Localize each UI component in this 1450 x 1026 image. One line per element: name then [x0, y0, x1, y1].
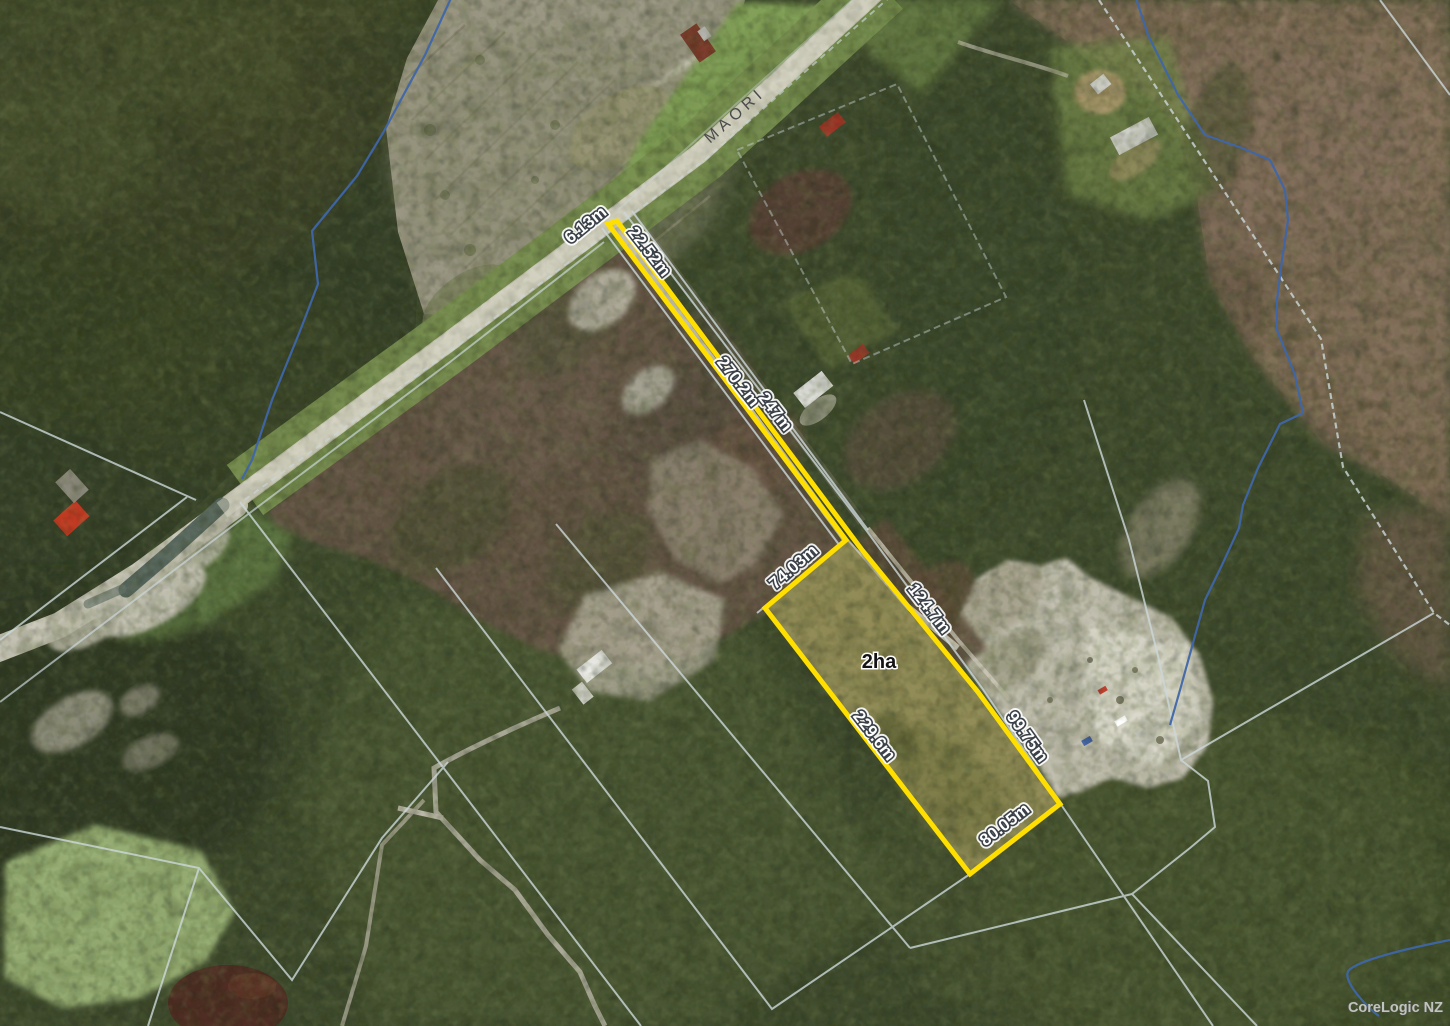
svg-text:CoreLogic NZ: CoreLogic NZ: [1348, 1000, 1443, 1016]
svg-text:2ha: 2ha: [862, 651, 897, 673]
